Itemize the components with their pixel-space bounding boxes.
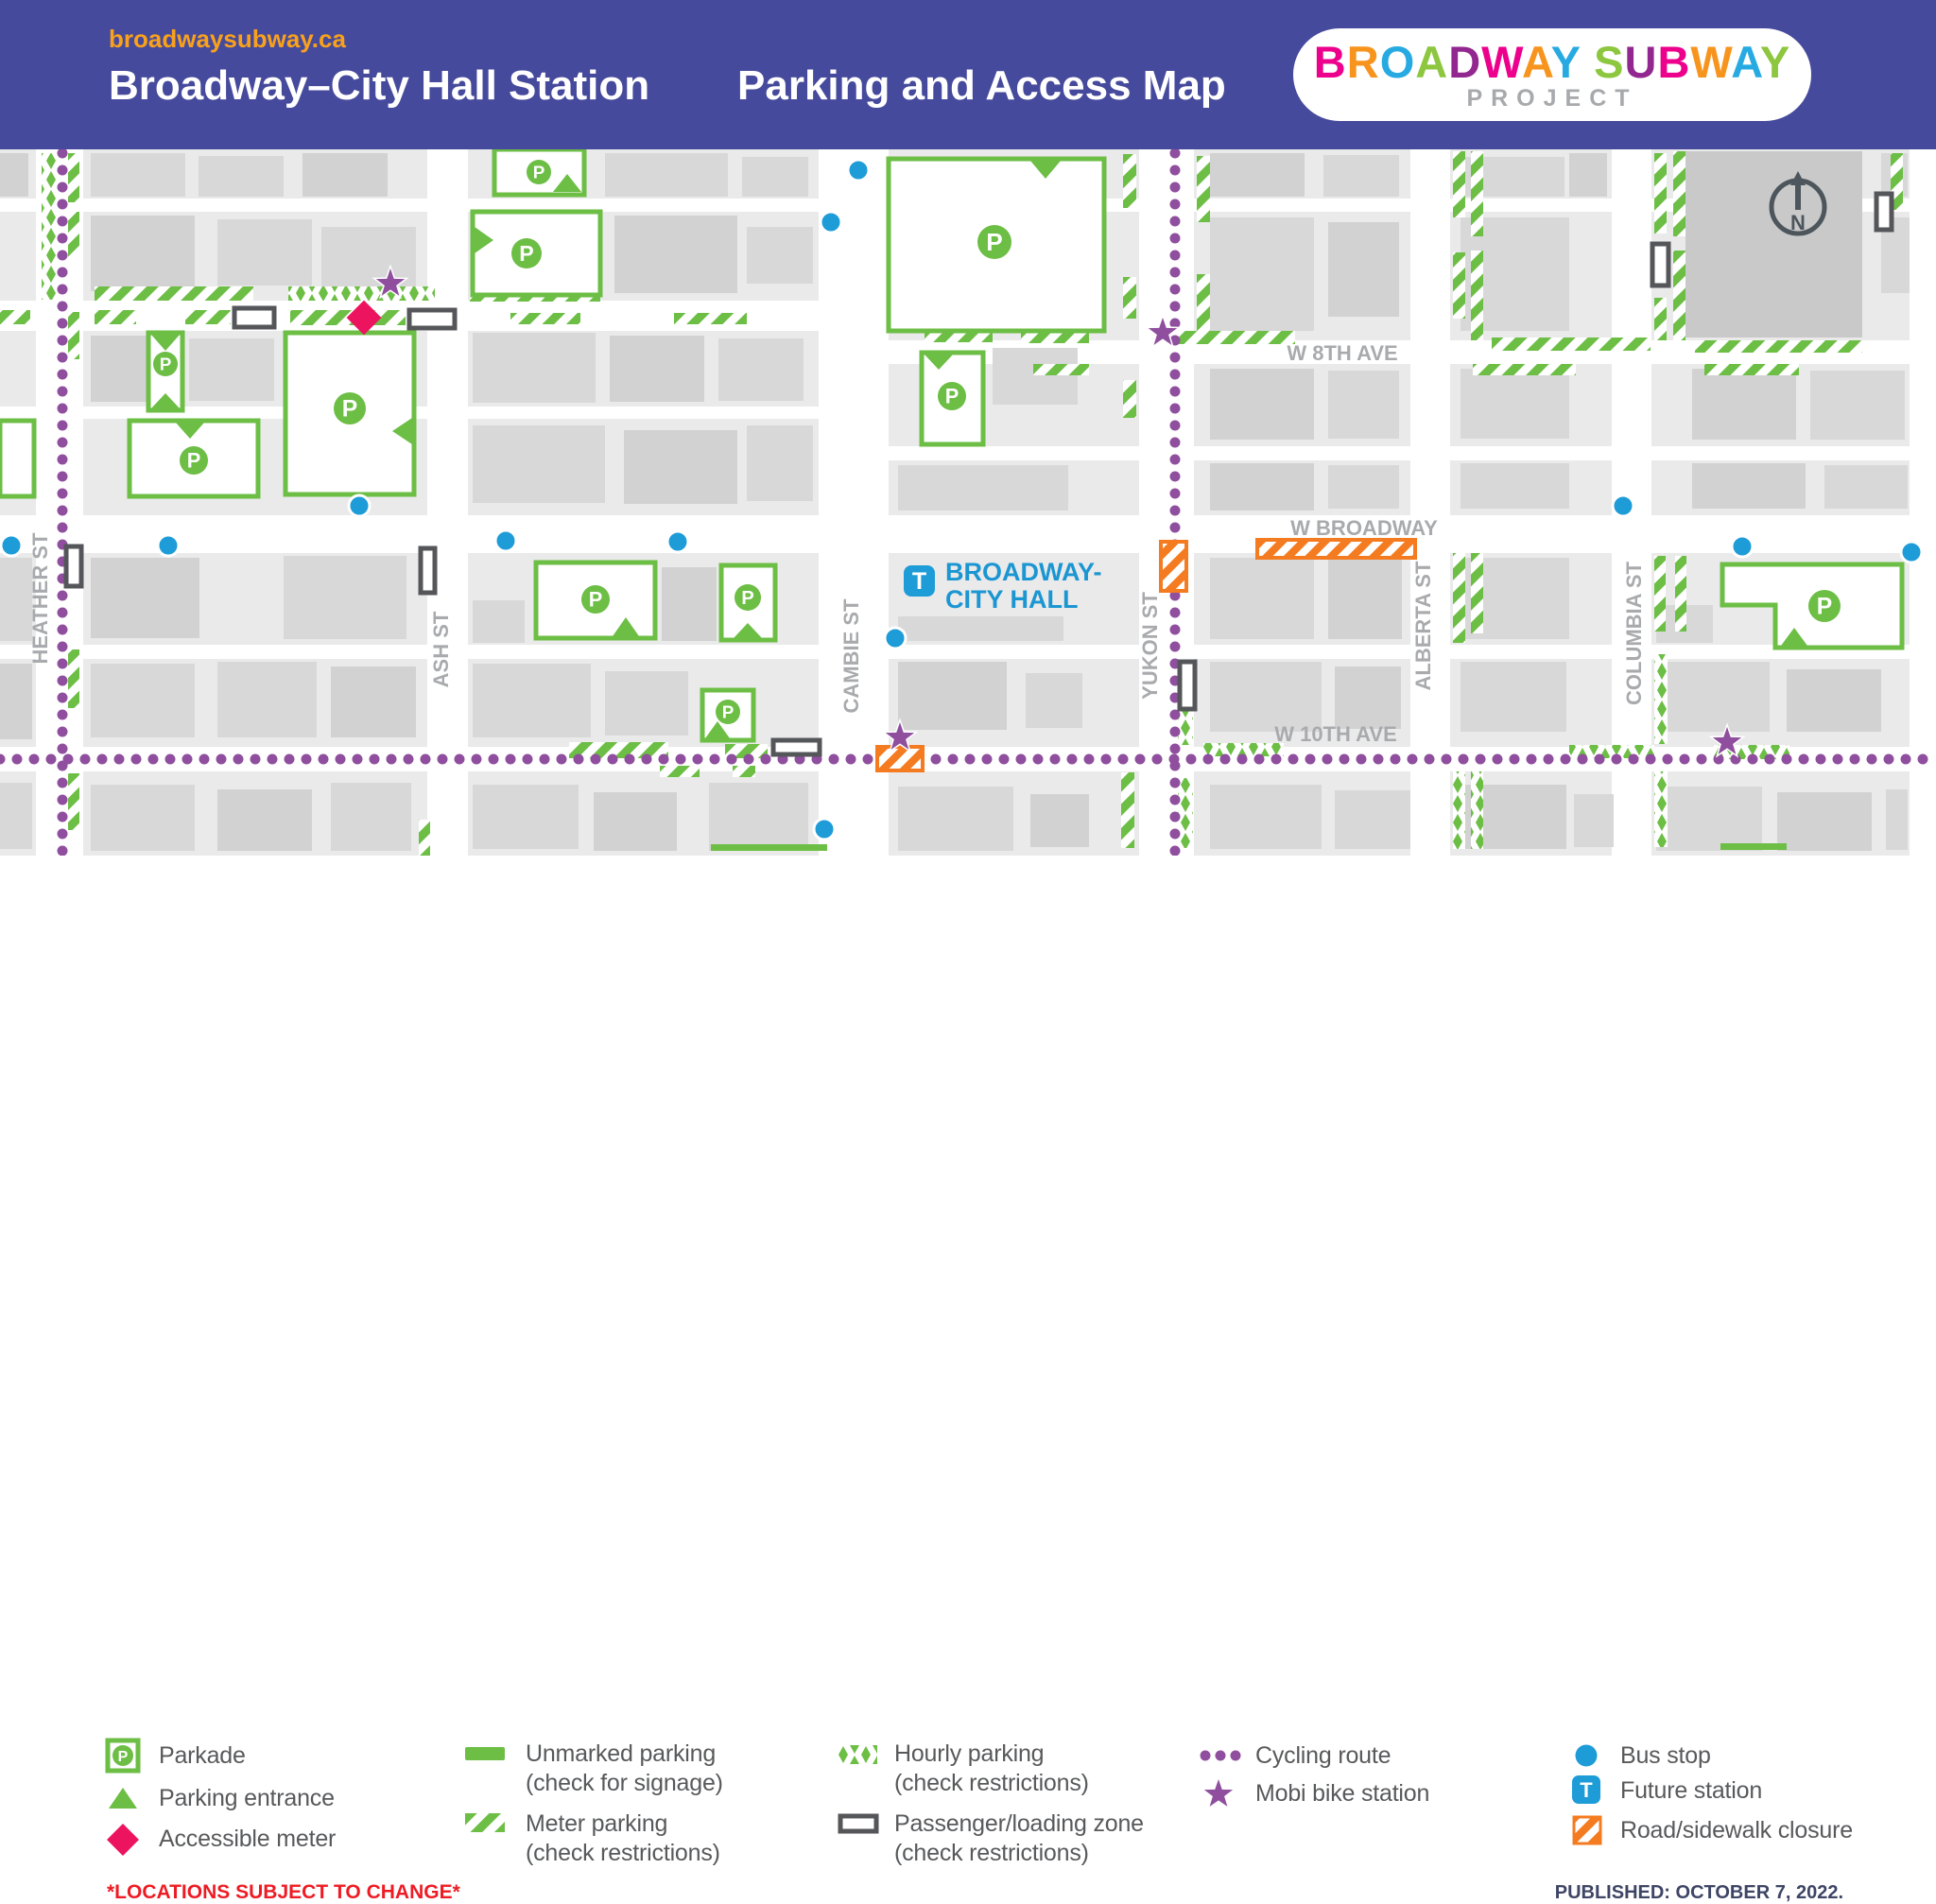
building [610,336,704,402]
meter-parking-icon [465,1813,505,1832]
parkade-marker: P [494,149,584,195]
building [91,785,195,851]
meter-parking-zone [95,286,253,301]
street [1139,149,1194,856]
building [594,792,677,851]
bus-stop-icon [1574,1743,1599,1768]
hourly-parking-zone [1654,654,1668,744]
accessible-meter-icon [105,1822,141,1858]
legend: P Parkade Parking entrance Accessible me… [0,856,1936,1065]
meter-parking-zone [1471,251,1483,340]
building [1210,662,1322,732]
website-link[interactable]: broadwaysubway.ca [109,25,346,54]
parkade-p-letter: P [741,588,754,609]
street-label-cambie: CAMBIE ST [839,598,863,714]
bus-stop-marker [821,212,841,233]
parkade-p-letter: P [722,702,735,722]
street [1910,149,1936,856]
meter-parking-zone [1453,252,1465,319]
meter-parking-zone [68,312,79,359]
road-closure-marker [1161,542,1186,591]
meter-parking-zone [68,773,79,830]
building [217,219,312,286]
parkade-marker: P [721,565,775,640]
building [1886,789,1908,850]
building [1685,151,1862,338]
loading-zone-marker [234,308,274,327]
meter-parking-zone [1473,364,1576,375]
legend-sublabel: (check restrictions) [894,1770,1089,1797]
parking-entrance-icon [107,1786,139,1810]
building [91,216,195,291]
building [1210,369,1314,440]
locations-note: *LOCATIONS SUBJECT TO CHANGE* [107,1881,460,1904]
building [898,787,1013,851]
legend-label: Parkade [159,1742,246,1770]
building [1335,790,1410,849]
hourly-parking-zone [1453,771,1465,849]
building [0,153,28,197]
building [91,664,195,737]
parkade-marker: P [889,159,1104,331]
meter-parking-zone [660,766,700,777]
building [1569,153,1607,197]
building [1210,463,1314,511]
loading-zone-marker [66,546,81,586]
legend-label: Mobi bike station [1255,1780,1429,1808]
meter-parking-zone [185,310,231,324]
unmarked-parking-zone [1720,843,1787,850]
loading-zone-marker [421,548,435,593]
street [416,407,822,419]
legend-label: Road/sidewalk closure [1620,1817,1853,1844]
parkade-p-letter: P [160,355,172,374]
parkade-p-letter: P [187,449,201,473]
building [1335,666,1401,729]
station-name-line2: CITY HALL [945,585,1079,614]
parkade-marker: P [536,563,655,638]
unmarked-parking-zone [711,844,827,851]
meter-parking-zone [733,766,755,777]
loading-zone-marker [773,740,820,754]
svg-text:T: T [1580,1778,1593,1802]
building [217,789,312,851]
legend-label: Accessible meter [159,1826,336,1853]
parkade-p-letter: P [342,397,357,423]
legend-label: Meter parking [526,1810,667,1838]
meter-parking-zone [1033,364,1089,375]
parkade-marker: P [702,690,753,740]
building [709,783,808,851]
bus-stop-marker [495,530,516,551]
building [473,333,596,403]
building [1787,669,1881,732]
loading-zone-marker [1180,662,1195,709]
parking-map: PPPPPPPPPPP T BROADWAY- CITY HALL N HEAT… [0,149,1936,856]
loading-zone-icon [838,1813,879,1834]
building [1210,153,1305,197]
loading-zone-marker [1652,244,1668,286]
building [473,425,605,503]
bus-stop-marker [667,531,688,552]
building [898,616,1063,641]
meter-parking-zone [1178,331,1295,344]
parkade-marker: P [285,333,414,494]
building [91,336,147,402]
parkade-p-letter: P [1817,595,1832,620]
building [1692,369,1796,440]
parkade-p-letter: P [986,228,1002,256]
meter-parking-zone [1123,277,1136,319]
building [1461,662,1566,732]
street [427,149,468,856]
meter-parking-zone [1654,153,1667,234]
meter-parking-zone [1654,298,1667,340]
legend-sublabel: (check restrictions) [526,1840,720,1867]
svg-text:P: P [118,1749,129,1765]
parkade-icon: P [105,1738,141,1774]
meter-parking-zone [1673,151,1685,236]
logo-subtitle: PROJECT [1466,87,1637,111]
broadway-subway-logo: BROADWAY SUBWAY PROJECT [1293,28,1811,121]
building [605,153,728,197]
parkade-marker: P [130,421,258,496]
building [0,558,32,641]
parkade-p-letter: P [533,163,545,182]
building [1328,465,1399,509]
hourly-parking-zone [1654,771,1668,847]
bus-stop-marker [814,819,835,839]
building [1810,371,1905,440]
meter-parking-zone [1492,338,1651,351]
meter-parking-zone [1453,553,1465,643]
legend-sublabel: (check restrictions) [894,1840,1089,1867]
road-closure-marker [877,747,923,770]
building [993,348,1078,405]
street-label-alberta: ALBERTA ST [1411,561,1435,690]
meter-parking-zone [1121,772,1134,848]
building [217,662,317,737]
building [199,156,284,197]
building [1656,662,1770,732]
building [1574,794,1614,847]
hourly-parking-zone [288,286,435,301]
meter-parking-zone [0,310,30,324]
street-label-yukon: YUKON ST [1138,592,1162,700]
meter-parking-zone [1695,340,1862,353]
cycling-route-icon [1200,1749,1241,1762]
building [1323,155,1399,197]
building [1210,217,1314,331]
meter-parking-zone [68,153,79,202]
legend-label: Future station [1620,1777,1762,1805]
building [1824,465,1908,509]
parkade-p-letter: P [519,241,533,266]
street-label-heather: HEATHER ST [28,532,52,664]
meter-parking-zone [1654,556,1666,632]
building [1656,787,1762,851]
bus-stop-marker [349,495,370,516]
building [605,671,688,736]
parkade-marker: P [473,212,600,295]
building [898,465,1068,511]
legend-label: Parking entrance [159,1785,335,1812]
parking-access-map-page: { "colors": { "header_bg": "#464A9C", "a… [0,0,1936,1065]
building [1210,785,1322,849]
building [742,157,808,197]
parkade-marker [0,421,34,496]
building [1461,369,1569,439]
parkade-marker: P [148,333,182,410]
building [624,430,737,504]
meter-parking-zone [68,649,79,708]
building [1026,673,1082,728]
meter-parking-zone [1673,251,1685,340]
meter-parking-zone [68,212,79,257]
building [898,662,1007,730]
meter-parking-zone [419,820,430,856]
legend-label: Hourly parking [894,1740,1044,1768]
building [331,783,411,851]
logo-wordmark: BROADWAY SUBWAY [1314,40,1790,84]
building [1692,463,1806,509]
road-closure-marker [1257,540,1415,558]
street-label-w10th: W 10TH AVE [1274,722,1397,746]
meter-parking-zone [569,742,668,758]
map-title: Parking and Access Map [737,62,1226,110]
building [747,227,813,284]
legend-sublabel: (check for signage) [526,1770,723,1797]
legend-label: Passenger/loading zone [894,1810,1144,1838]
building [473,785,579,849]
street-label-wbroadway: W BROADWAY [1290,516,1438,540]
building [1030,794,1089,847]
hourly-parking-zone [1471,771,1483,849]
building [91,558,199,638]
parkade-marker: P [922,353,983,444]
meter-parking-zone [95,310,136,324]
meter-parking-zone [1453,151,1465,217]
parkade-p-letter: P [589,588,603,612]
bus-stop-marker [158,535,179,556]
published-date: PUBLISHED: OCTOBER 7, 2022. [1555,1882,1843,1904]
building [1777,792,1872,851]
building [284,556,406,639]
building [662,567,717,641]
building [302,153,388,197]
building [718,338,804,401]
loading-zone-marker [1876,194,1892,230]
building [91,153,185,197]
street-label-ash: ASH ST [429,611,453,687]
mobi-station-icon [1201,1776,1236,1812]
building [1328,371,1399,439]
building [747,425,813,501]
building [1328,222,1399,317]
meter-parking-zone [1197,274,1210,331]
meter-parking-zone [674,313,747,324]
building [1461,463,1569,509]
building [0,664,32,739]
building [189,338,274,401]
meter-parking-zone [1704,364,1799,375]
station-t-letter: T [912,568,926,595]
legend-label: Cycling route [1255,1742,1391,1770]
building [0,783,32,849]
street [1410,149,1450,856]
road-closure-icon [1572,1815,1602,1845]
building [473,664,591,737]
bus-stop-marker [1613,495,1633,516]
street-label-w8th: W 8TH AVE [1287,341,1397,365]
bus-stop-marker [1732,536,1753,557]
future-station-icon: T [1572,1775,1600,1804]
header: broadwaysubway.ca Broadway–City Hall Sta… [0,0,1936,149]
bus-stop-marker [885,628,906,649]
meter-parking-zone [510,313,580,324]
building [473,600,525,643]
unmarked-parking-icon [465,1745,505,1762]
legend-label: Unmarked parking [526,1740,716,1768]
meter-parking-zone [1675,556,1686,632]
bus-stop-marker [848,160,869,181]
hourly-parking-icon [838,1745,877,1764]
building [1210,558,1314,639]
building [1328,560,1402,639]
building [331,666,416,737]
legend-label: Bus stop [1620,1742,1711,1770]
meter-parking-zone [1123,154,1136,208]
meter-parking-zone [1471,151,1483,236]
bus-stop-marker [1,535,22,556]
hourly-parking-zone [1178,778,1193,848]
hourly-parking-zone [42,153,56,300]
bus-stop-marker [1901,542,1922,563]
north-label: N [1790,211,1806,234]
meter-parking-zone [1197,156,1210,222]
building [614,216,737,293]
loading-zone-marker [409,310,455,328]
street-label-columbia: COLUMBIA ST [1622,561,1646,705]
parkade-p-letter: P [945,385,959,408]
meter-parking-zone [1471,553,1483,633]
station-title: Broadway–City Hall Station [109,62,649,110]
station-name-line1: BROADWAY- [945,558,1102,586]
meter-parking-zone [1123,380,1136,418]
